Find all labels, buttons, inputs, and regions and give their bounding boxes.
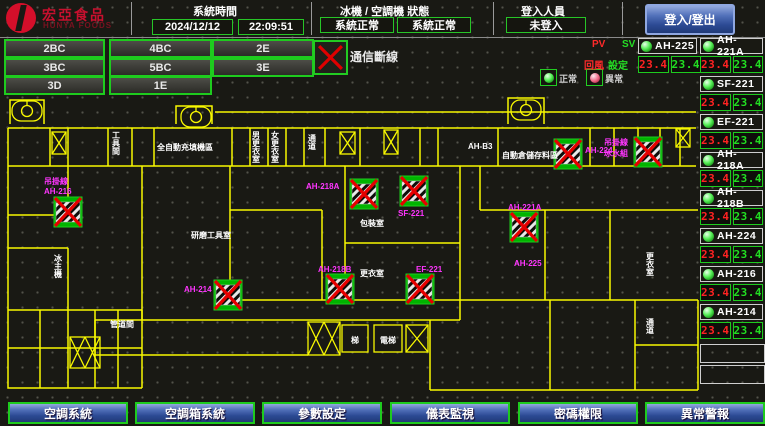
room-label-locker-m: 男更衣室	[251, 131, 261, 164]
floor-button-2bc[interactable]: 2BC	[4, 39, 105, 58]
room-label-ahb3: AH-B3	[468, 142, 493, 151]
unit-name: AH-218A	[717, 148, 762, 172]
room-label-storage: 自動倉儲存料區	[502, 150, 558, 160]
sv-value: 23.4	[733, 56, 764, 73]
fan-icon-ah-221a[interactable]	[510, 212, 538, 242]
room-label-duct: 管道間	[110, 319, 134, 329]
nav-meter-monitor[interactable]: 儀表監視	[390, 402, 510, 424]
nav-parameter-set[interactable]: 參數設定	[262, 402, 382, 424]
floor-button-3e[interactable]: 3E	[212, 58, 314, 77]
unit-values: 23.4 23.4	[700, 246, 763, 263]
unit-values: 23.4 23.4	[700, 322, 763, 339]
pv-value: 23.4	[700, 170, 731, 187]
room-label-locker-right: 更衣室	[645, 251, 655, 277]
equip-label-ef221: EF-221	[416, 265, 443, 274]
floorplan: 工具間 全自動充填機區 男更衣室 女更衣室 通道 AH-B3 自動倉儲存料區 研…	[0, 92, 700, 396]
pv-row-label: 回風	[584, 57, 604, 72]
room-label-locker-f: 女更衣室	[270, 130, 280, 164]
system-time-value: 22:09:51	[238, 19, 304, 35]
equip-label-hangline-r1: 吊掛線	[604, 137, 628, 147]
unit-name: AH-225	[655, 40, 694, 52]
status-lamp-icon	[703, 231, 714, 242]
room-label-tool: 工具間	[112, 131, 121, 156]
pv-value: 23.4	[700, 94, 731, 111]
pv-value: 23.4	[700, 56, 731, 73]
sv-value: 23.4	[733, 132, 764, 149]
sv-row-label: 設定	[608, 57, 628, 72]
fan-icon-sf-221[interactable]	[400, 176, 428, 206]
equip-label-ah225: AH-225	[514, 259, 542, 268]
login-logout-button[interactable]: 登入/登出	[645, 4, 735, 35]
system-date-value: 2024/12/12	[152, 19, 233, 35]
equip-label-hangline-2: AH-216	[44, 187, 72, 196]
sv-value: 23.4	[733, 246, 764, 263]
status-lamp-icon	[641, 41, 652, 52]
status-lamp-icon	[703, 307, 714, 318]
divider	[131, 2, 132, 35]
unit-values: 23.4 23.4	[700, 284, 763, 301]
nav-ac-system[interactable]: 空調系統	[8, 402, 128, 424]
unit-ah-221a[interactable]: AH-221A	[700, 38, 763, 54]
unit-ah-218a[interactable]: AH-218A	[700, 152, 763, 168]
unit-name: SF-221	[717, 78, 754, 90]
floor-button-2e[interactable]: 2E	[212, 39, 314, 58]
fan-icon-ah-216[interactable]	[54, 197, 82, 227]
room-label-elevator: 電梯	[380, 335, 396, 345]
room-label-corridor-right: 通道	[646, 317, 655, 335]
pv-value: 23.4	[700, 322, 731, 339]
floor-button-5bc[interactable]: 5BC	[109, 58, 212, 77]
pv-value: 23.4	[638, 56, 669, 73]
status-lamp-icon	[703, 155, 714, 166]
room-label-packing: 包裝室	[359, 218, 384, 228]
fan-icon-ah-218a[interactable]	[350, 179, 378, 209]
status-lamp-icon	[703, 269, 714, 280]
unit-values: 23.4 23.4	[638, 56, 697, 73]
unit-name: EF-221	[717, 116, 754, 128]
unit-ah-214[interactable]: AH-214	[700, 304, 763, 320]
floor-button-4bc[interactable]: 4BC	[109, 39, 212, 58]
sv-value: 23.4	[733, 170, 764, 187]
ahu-status-value: 系統正常	[397, 17, 471, 33]
pv-value: 23.4	[700, 284, 731, 301]
stairs-icon	[511, 100, 541, 120]
shaft-boxes	[52, 129, 690, 368]
unit-values: 23.4 23.4	[700, 56, 763, 73]
room-label-corridor: 通道	[308, 133, 317, 151]
chiller-status-value: 系統正常	[320, 17, 394, 33]
unit-name: AH-216	[717, 268, 756, 280]
room-label-locker-center: 更衣室	[360, 268, 384, 278]
unit-ah-216[interactable]: AH-216	[700, 266, 763, 282]
header-bar: 宏亞食品 HUNYA FOODS 系統時間 2024/12/12 22:09:5…	[0, 0, 765, 38]
sv-header-label: SV	[622, 39, 635, 50]
equip-label-sf221: SF-221	[398, 209, 425, 218]
room-label-autofill: 全自動充填機區	[156, 142, 213, 152]
unit-values: 23.4 23.4	[700, 208, 763, 225]
unit-sf-221[interactable]: SF-221	[700, 76, 763, 92]
nav-ahu-system[interactable]: 空調箱系統	[135, 402, 255, 424]
equip-label-ah214: AH-214	[184, 285, 212, 294]
normal-label: 正常	[559, 72, 577, 85]
comm-loss-label: 通信斷線	[350, 48, 398, 65]
stairs-icon	[181, 107, 211, 127]
status-lamp-icon	[703, 41, 714, 52]
status-lamp-icon	[703, 117, 714, 128]
fan-icon-hangline[interactable]	[634, 137, 662, 167]
normal-lamp-icon	[540, 69, 557, 86]
unit-ah-224[interactable]: AH-224	[700, 228, 763, 244]
pv-header-label: PV	[592, 39, 605, 50]
spare-slot	[700, 344, 765, 363]
unit-ef-221[interactable]: EF-221	[700, 114, 763, 130]
unit-name: AH-214	[717, 306, 756, 318]
equip-label-ah221a: AH-221A	[508, 203, 542, 212]
fan-icon-ah-214[interactable]	[214, 280, 242, 310]
status-lamp-icon	[703, 79, 714, 90]
equip-label-hangline-r2: 冰水組	[604, 148, 628, 158]
sv-value: 23.4	[733, 322, 764, 339]
unit-values: 23.4 23.4	[700, 170, 763, 187]
room-label-chiller: 冰主機	[53, 253, 63, 279]
floor-button-3bc[interactable]: 3BC	[4, 58, 105, 77]
nav-alarm[interactable]: 異常警報	[645, 402, 765, 424]
spare-slot	[700, 365, 765, 384]
status-lamp-icon	[703, 193, 714, 204]
unit-name: AH-224	[717, 230, 756, 242]
comm-loss-icon	[313, 40, 348, 75]
divider	[493, 2, 494, 35]
hmi-screen: { "header": { "logo": {"name": "宏亞食品", "…	[0, 0, 765, 426]
system-time-label: 系統時間	[193, 3, 237, 19]
pv-value: 23.4	[700, 246, 731, 263]
abnormal-label: 異常	[605, 72, 623, 85]
fan-icon-ef-221[interactable]	[406, 274, 434, 304]
unit-ah-218b[interactable]: AH-218B	[700, 190, 763, 206]
equip-label-hangline-1: 吊掛線	[44, 176, 68, 186]
login-user-value: 未登入	[506, 17, 586, 33]
equip-label-ah218b: AH-218B	[318, 265, 352, 274]
stairs-icon	[12, 101, 42, 121]
room-label-stair: 梯	[351, 335, 359, 345]
fan-icon-ah-218b[interactable]	[326, 274, 354, 304]
nav-password-rights[interactable]: 密碼權限	[518, 402, 638, 424]
sv-value: 23.4	[733, 208, 764, 225]
unit-ah-225[interactable]: AH-225	[638, 38, 697, 54]
room-label-grinding: 研磨工具室	[191, 230, 231, 240]
sv-value: 23.4	[733, 94, 764, 111]
unit-values: 23.4 23.4	[700, 94, 763, 111]
divider	[311, 2, 312, 35]
divider	[622, 2, 623, 35]
fan-icon-ah-224[interactable]	[554, 139, 582, 169]
sv-value: 23.4	[733, 284, 764, 301]
equip-label-ah218a: AH-218A	[306, 182, 340, 191]
pv-value: 23.4	[700, 132, 731, 149]
sv-value: 23.4	[671, 56, 702, 73]
unit-name: AH-221A	[717, 34, 762, 58]
unit-name: AH-218B	[717, 186, 762, 210]
pv-value: 23.4	[700, 208, 731, 225]
unit-values: 23.4 23.4	[700, 132, 763, 149]
company-name-en: HUNYA FOODS	[43, 21, 112, 30]
company-logo-icon	[6, 3, 36, 33]
